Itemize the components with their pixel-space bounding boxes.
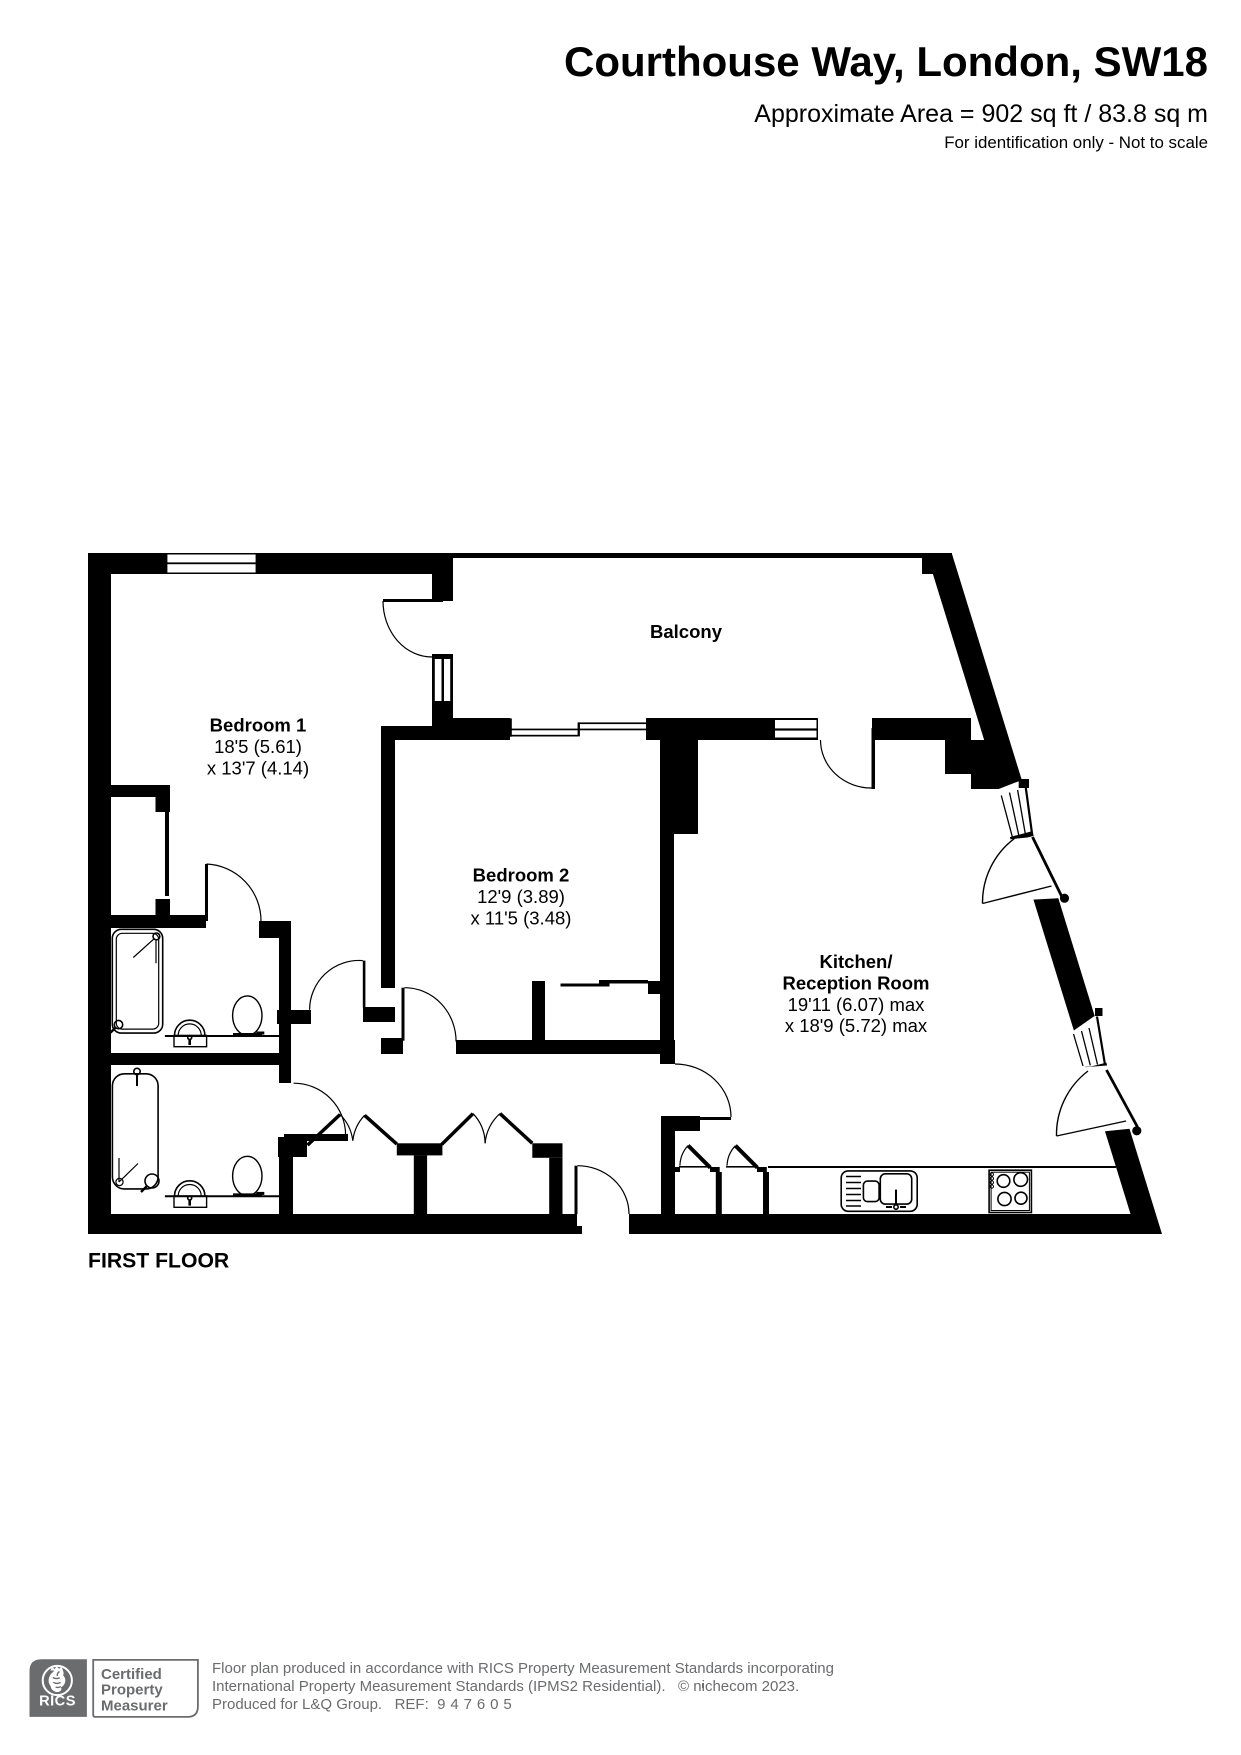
svg-text:RICS: RICS bbox=[39, 1694, 76, 1710]
svg-text:x 13'7 (4.14): x 13'7 (4.14) bbox=[207, 757, 309, 778]
svg-text:Bedroom 1: Bedroom 1 bbox=[210, 715, 307, 736]
svg-text:Reception Room: Reception Room bbox=[783, 972, 930, 993]
svg-text:FIRST FLOOR: FIRST FLOOR bbox=[88, 1250, 229, 1273]
svg-text:19'11 (6.07) max: 19'11 (6.07) max bbox=[788, 994, 926, 1015]
svg-text:12'9 (3.89): 12'9 (3.89) bbox=[477, 886, 565, 907]
svg-text:Certified: Certified bbox=[101, 1666, 162, 1683]
svg-text:Kitchen/: Kitchen/ bbox=[820, 951, 893, 972]
svg-text:Bedroom 2: Bedroom 2 bbox=[473, 865, 570, 886]
svg-text:Measurer: Measurer bbox=[101, 1697, 168, 1714]
svg-text:Property: Property bbox=[101, 1682, 163, 1699]
svg-text:x 11'5 (3.48): x 11'5 (3.48) bbox=[471, 907, 572, 928]
svg-text:x 18'9 (5.72) max: x 18'9 (5.72) max bbox=[785, 1015, 928, 1036]
svg-text:18'5 (5.61): 18'5 (5.61) bbox=[214, 736, 302, 757]
svg-text:Balcony: Balcony bbox=[650, 621, 723, 642]
